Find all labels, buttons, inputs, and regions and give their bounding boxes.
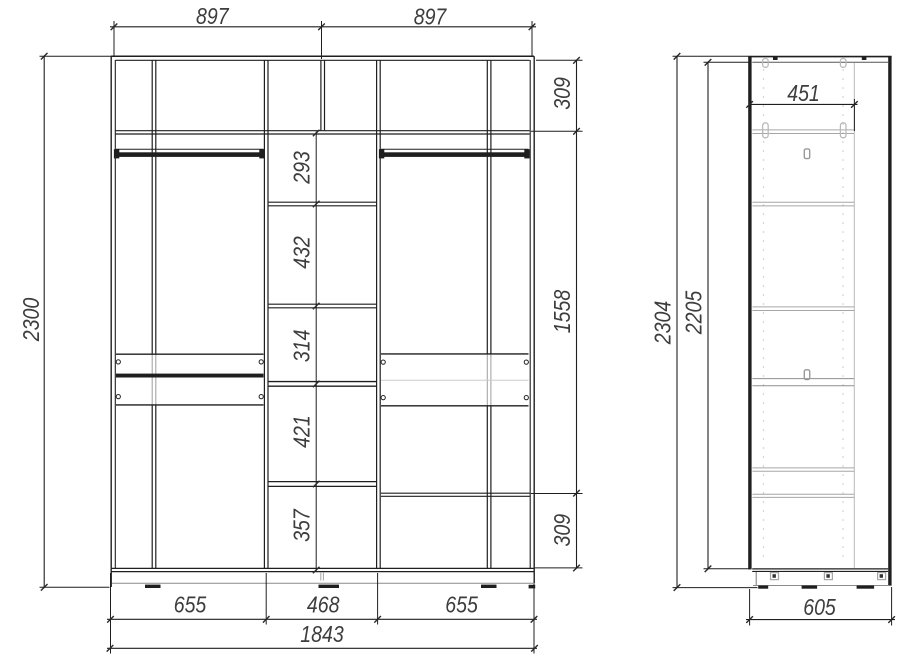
- svg-text:2300: 2300: [18, 298, 44, 342]
- svg-text:2205: 2205: [681, 291, 707, 335]
- svg-text:1843: 1843: [300, 622, 344, 648]
- svg-text:432: 432: [289, 236, 315, 269]
- svg-text:655: 655: [445, 592, 478, 618]
- svg-text:897: 897: [414, 4, 448, 30]
- svg-text:357: 357: [289, 508, 315, 542]
- svg-text:451: 451: [787, 81, 820, 107]
- svg-text:1558: 1558: [550, 290, 576, 334]
- svg-text:309: 309: [550, 514, 576, 547]
- svg-text:293: 293: [289, 151, 315, 185]
- svg-text:314: 314: [289, 329, 315, 362]
- svg-text:468: 468: [307, 592, 340, 618]
- svg-text:2304: 2304: [650, 301, 676, 345]
- svg-text:655: 655: [174, 592, 207, 618]
- svg-text:605: 605: [803, 594, 836, 620]
- svg-text:897: 897: [196, 4, 230, 30]
- svg-text:309: 309: [550, 77, 576, 110]
- svg-text:421: 421: [289, 415, 315, 448]
